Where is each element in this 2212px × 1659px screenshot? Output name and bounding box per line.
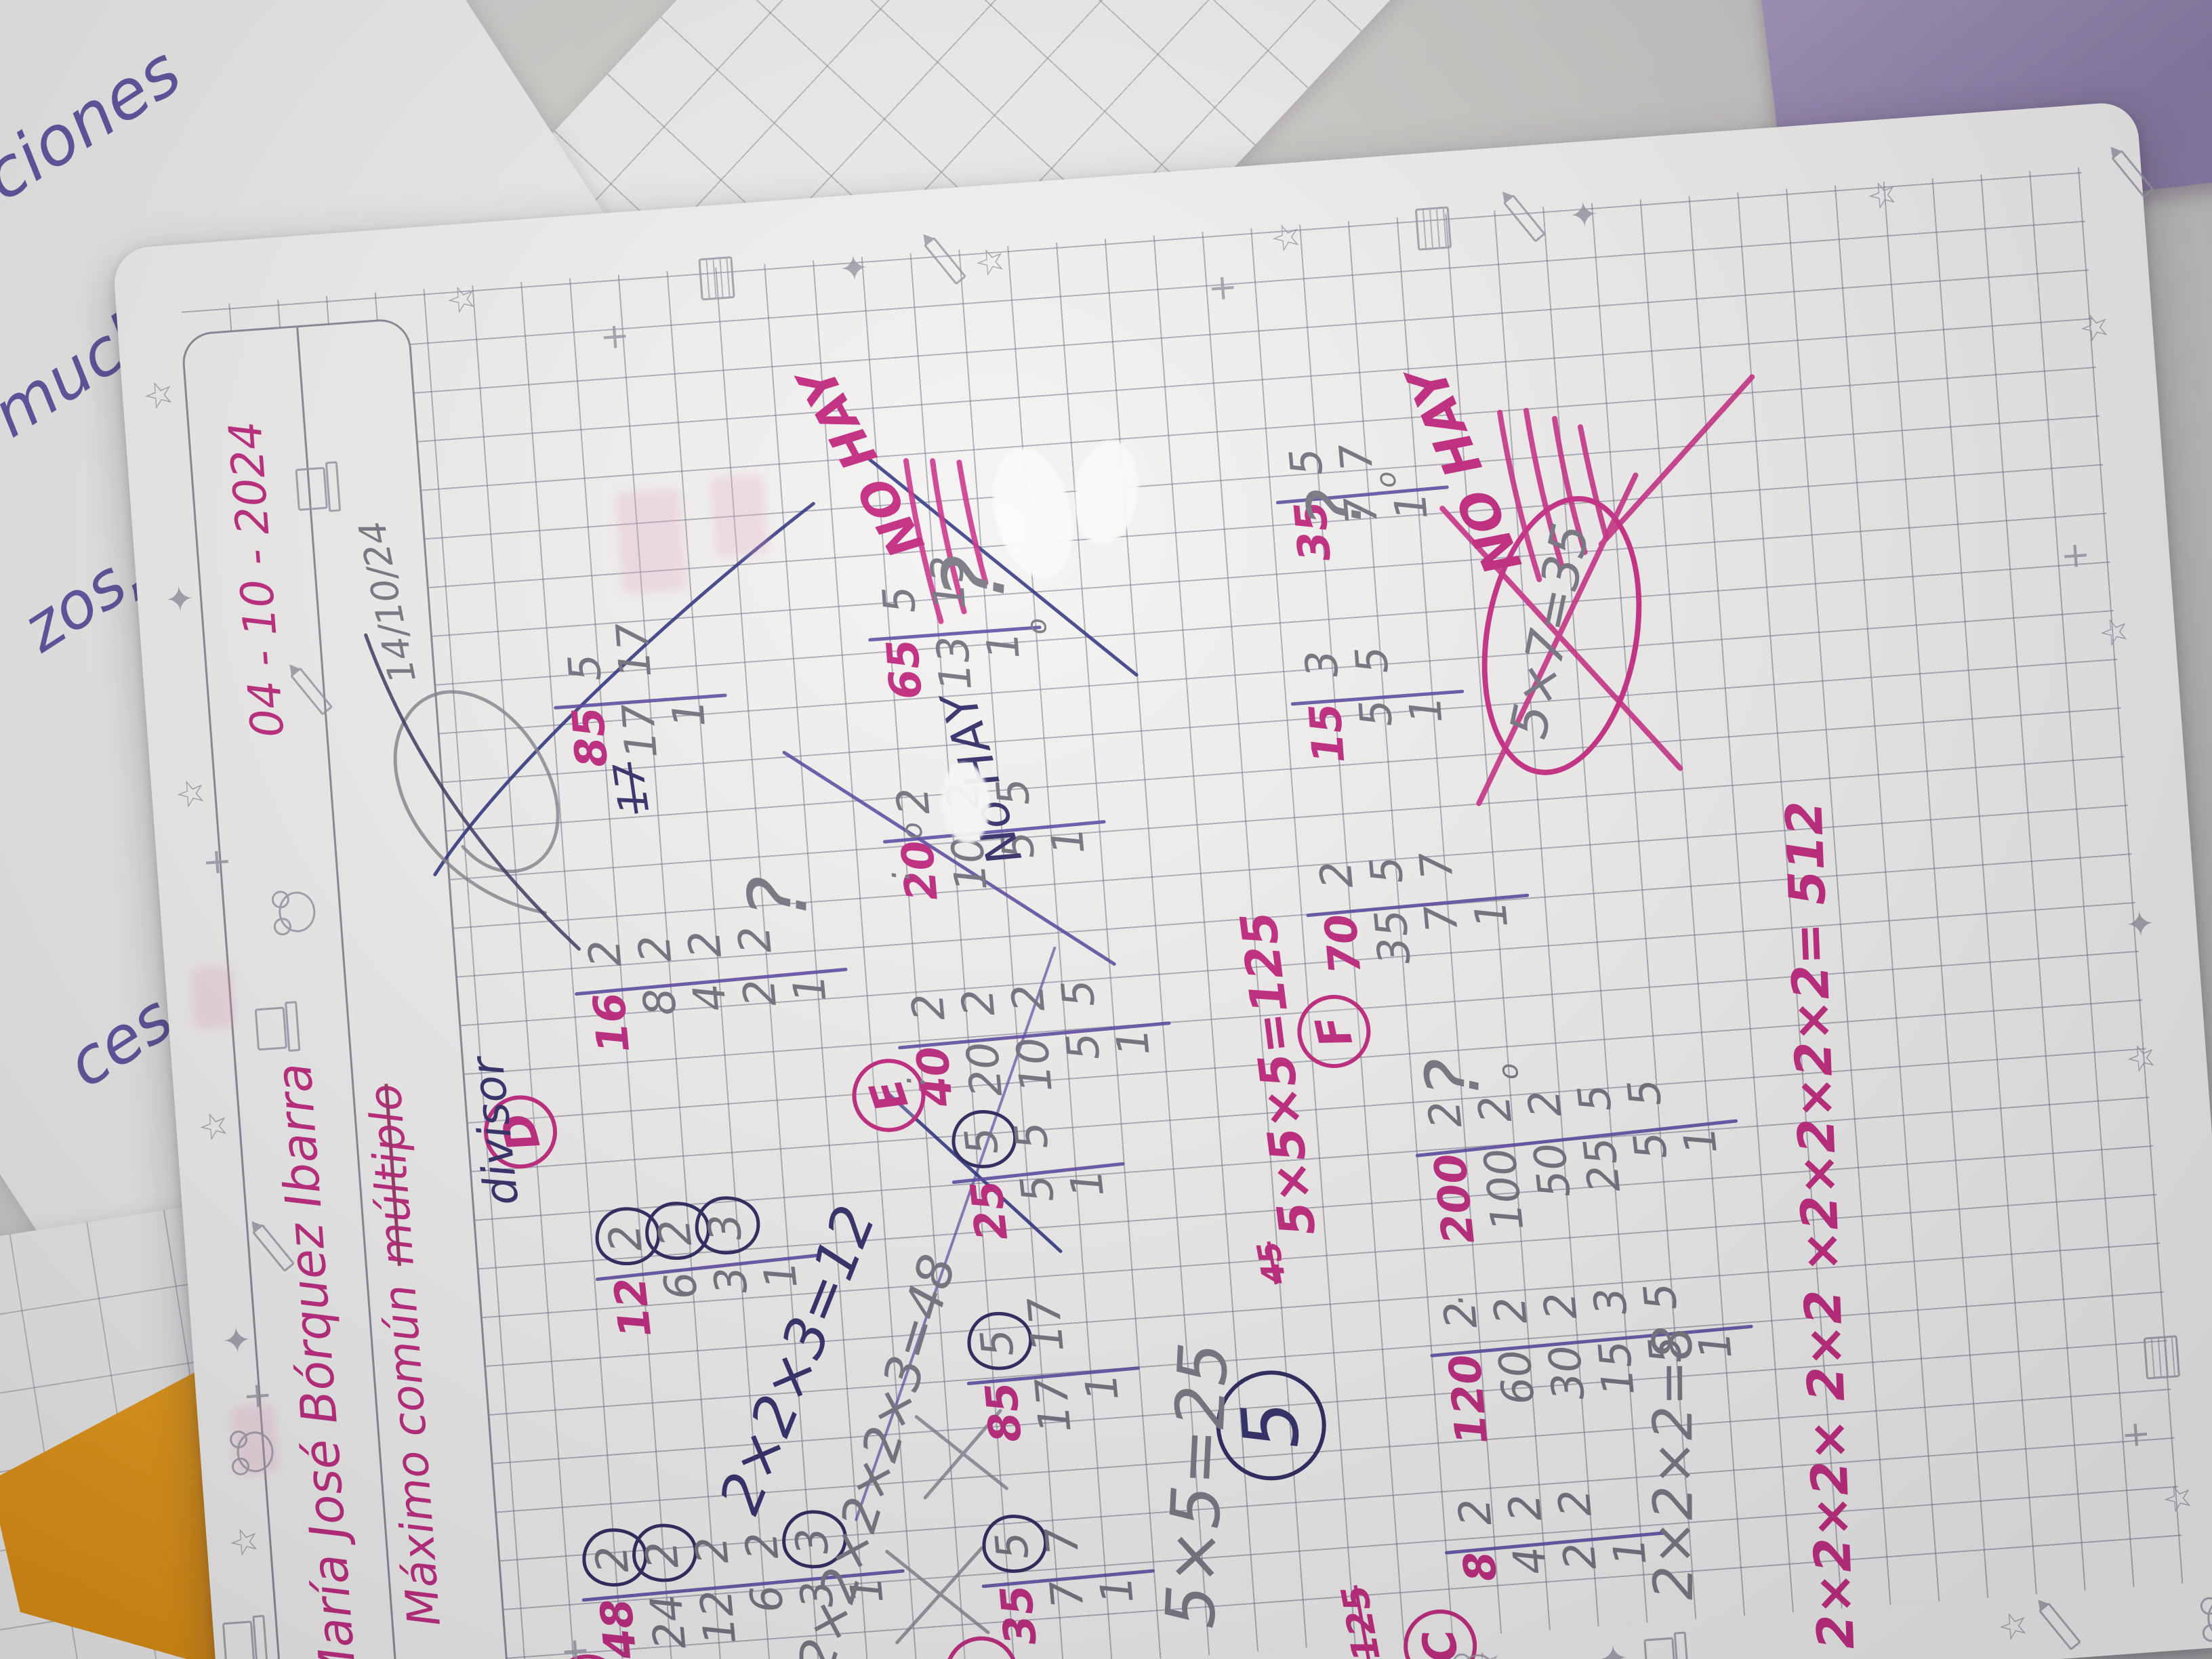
divisor: 2	[949, 939, 1007, 1032]
factor-table-F: 153551	[1293, 592, 1459, 818]
divisor: 17	[606, 600, 662, 693]
divisor: 2	[632, 1491, 691, 1584]
factor-table-E: 402202102551	[899, 924, 1168, 1162]
q-d: ?	[731, 876, 827, 922]
divisor: 7	[1407, 802, 1465, 895]
header-date: 04 - 10 - 2024	[219, 419, 294, 739]
divisor	[1123, 927, 1131, 1016]
notebook-page: María José Bórquez Ibarra 04 - 10 - 2024…	[112, 101, 2212, 1659]
divisor: 2	[1514, 1039, 1574, 1133]
divisor: 5	[1357, 806, 1415, 899]
star-icon: ☆	[2093, 615, 2136, 649]
divisor: 2	[998, 934, 1057, 1027]
pink-stain	[710, 473, 770, 558]
divisor	[1481, 799, 1490, 888]
star-icon: ☆	[170, 777, 213, 811]
page-content: María José Bórquez Ibarra 04 - 10 - 2024…	[112, 101, 2212, 1659]
star-icon: ☆	[2121, 1041, 2163, 1076]
star-icon: ☆	[2074, 310, 2116, 345]
divisor: 2	[582, 1495, 640, 1589]
book-icon	[2144, 1335, 2180, 1379]
divisor: 3	[694, 1163, 754, 1257]
o-f: o	[1370, 470, 1403, 489]
star-icon: ☆	[193, 1109, 236, 1144]
star-icon: ☆	[1992, 1609, 2035, 1643]
q-e: ?	[923, 553, 1027, 606]
d85-correction: 17	[605, 759, 659, 817]
divisor: 5	[1048, 929, 1107, 1023]
factor-table-B: 85517171	[967, 1269, 1136, 1498]
o-d: o	[895, 821, 929, 840]
computer-icon	[255, 1006, 287, 1050]
divisor: 5	[1564, 1033, 1624, 1128]
bear-icon	[2206, 1597, 2212, 1640]
book-icon	[1415, 206, 1452, 250]
sparkle-icon: ✦	[217, 1324, 260, 1356]
plus-icon: +	[2053, 539, 2096, 572]
divisor: 2	[625, 884, 683, 978]
plus-icon: +	[554, 1635, 596, 1659]
sparkle-icon: ✦	[2120, 907, 2163, 940]
divisor: 2	[1307, 811, 1365, 904]
pencil-icon	[2039, 1602, 2082, 1651]
divisor: 2	[899, 943, 957, 1036]
divisor	[769, 1160, 778, 1249]
divisor: 5	[1614, 1028, 1673, 1122]
divisor: 2	[675, 880, 733, 974]
pink-stain	[190, 966, 235, 1029]
dividend: 15	[1300, 689, 1359, 819]
dividend: 65	[877, 625, 936, 754]
star-icon: ☆	[441, 283, 483, 317]
star-icon: ☆	[1265, 220, 1308, 255]
dividend: 5	[1349, 686, 1408, 815]
pink-stain	[615, 489, 687, 595]
q-c: ?	[1409, 1058, 1497, 1100]
divisor: 2	[644, 1168, 703, 1263]
divisor	[1418, 594, 1425, 684]
divisor: 2	[575, 889, 634, 983]
dividend: 1	[663, 686, 722, 815]
star-icon: ☆	[969, 245, 1012, 279]
factor-table-C: 8242221	[1446, 1434, 1665, 1659]
sparkle-icon: ✦	[1594, 1641, 1637, 1659]
plus-icon: +	[236, 1380, 279, 1412]
divisor	[1092, 1272, 1101, 1361]
dividend: 1	[1399, 682, 1458, 811]
plus-icon: +	[593, 321, 636, 353]
o-e: o	[1021, 617, 1054, 636]
sparkle-icon: ✦	[159, 582, 202, 615]
computer-icon	[1643, 1637, 1676, 1659]
star-icon: ☆	[2157, 1481, 2200, 1516]
divisor	[1107, 1475, 1115, 1563]
q-f: ?	[1292, 489, 1378, 529]
computer-icon	[222, 1620, 255, 1659]
background-sheet-text: oseciones	[0, 31, 194, 281]
plus-icon: +	[195, 846, 238, 878]
star-icon: ☆	[1862, 178, 1904, 213]
subject-struck-word: múltiplo	[359, 1082, 424, 1268]
desk-photo: osecionesnia muchazos, barbie-ces, ypahM…	[0, 0, 2212, 1659]
plus-icon: +	[2114, 1418, 2157, 1451]
divisor	[1688, 1025, 1698, 1114]
book-icon	[698, 256, 735, 300]
divisor	[681, 598, 688, 688]
eq-25-pencil: 5×5=25	[1151, 1340, 1244, 1630]
plus-icon: +	[1201, 272, 1244, 304]
divisor	[1058, 726, 1066, 815]
sparkle-icon: ✦	[834, 251, 876, 284]
factor-table-B: 355771	[982, 1473, 1151, 1659]
o-c: o	[1493, 1062, 1525, 1081]
sparkle-icon: ✦	[1564, 198, 1607, 230]
divisor: 5	[1276, 398, 1334, 491]
student-name: María José Bórquez Ibarra	[265, 1061, 368, 1659]
star-icon: ☆	[138, 378, 180, 413]
divisor: 5	[556, 604, 612, 697]
star-icon: ☆	[224, 1525, 266, 1559]
divisor	[1706, 1230, 1714, 1319]
divisor: 2	[594, 1174, 654, 1268]
computer-icon	[295, 467, 327, 511]
eq-8-pencil: 2×2×2=8	[1641, 1326, 1705, 1600]
45-struck: 45	[1250, 1238, 1293, 1288]
